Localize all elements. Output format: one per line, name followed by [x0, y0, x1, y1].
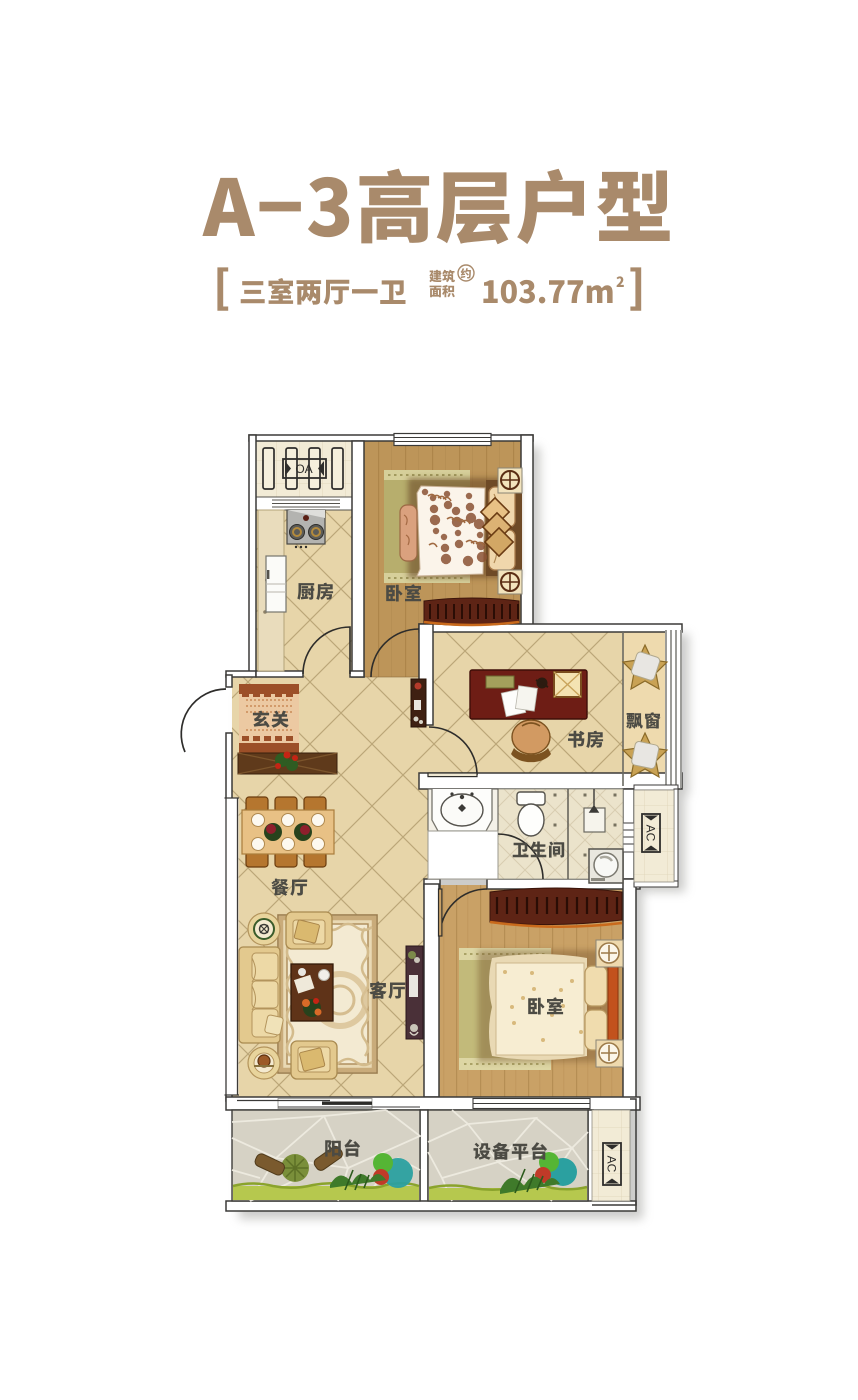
svg-text:AC: AC	[605, 1156, 619, 1173]
svg-text:AC: AC	[644, 825, 658, 842]
svg-text:OA: OA	[295, 462, 312, 476]
